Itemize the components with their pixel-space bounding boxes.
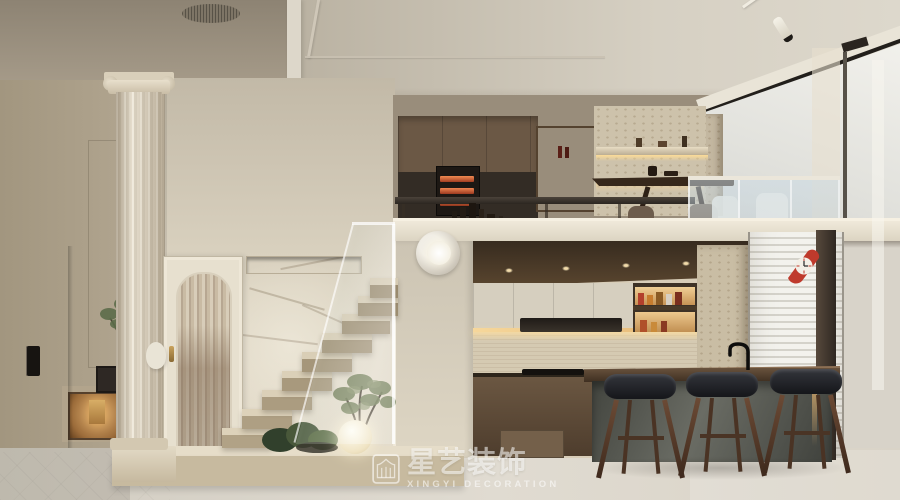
range-hood [520, 318, 622, 332]
spice-jar-icon [647, 295, 653, 305]
watermark-brand-en: XINGYI DECORATION [407, 479, 559, 490]
shelf-board [633, 306, 697, 310]
arched-door-glass [176, 272, 232, 448]
interior-photo: 星艺装饰 XINGYI DECORATION [0, 0, 900, 500]
dark-door-handle-icon [26, 346, 40, 376]
door-side-shadow [68, 246, 73, 448]
ceiling-pipe-horizontal [305, 56, 605, 58]
backsplash-glow [473, 332, 697, 341]
soffit-downlight-icon [562, 266, 570, 271]
red-triangle-clock [781, 245, 825, 287]
sheer-curtain-right [832, 44, 900, 472]
stair-step [242, 409, 292, 429]
loft-railing-rail [395, 197, 695, 204]
stool-seat [604, 374, 676, 399]
floating-stone-shelf [596, 147, 708, 155]
white-vase [146, 342, 166, 369]
soffit-downlight-icon [505, 268, 513, 273]
soffit-downlight-icon [622, 263, 630, 268]
glass-edge-top [352, 222, 395, 225]
stool-footrest [700, 434, 746, 438]
wine-bottle-icon [565, 147, 569, 158]
table-kettle-icon [648, 166, 657, 176]
bar-stool [686, 372, 776, 480]
shelf-object [682, 136, 687, 147]
spice-jar-icon [666, 294, 672, 305]
spice-jar-icon [638, 293, 644, 305]
spice-jar-icon [675, 292, 682, 305]
stool-footrest [784, 431, 830, 435]
watermark-brand-cn: 星艺装饰 [407, 448, 559, 478]
bar-faucet-icon [722, 340, 754, 370]
spice-jar-icon [656, 292, 663, 305]
gas-cooktop [522, 369, 584, 375]
curtain-light-gap [872, 60, 884, 390]
stool-footrest [618, 436, 664, 440]
niche-gold-plate [89, 400, 105, 424]
glass-edge-right [392, 224, 395, 444]
column-base [110, 438, 168, 450]
shelf-backlight [635, 287, 695, 305]
marble-lamp-light [427, 241, 451, 265]
shelf-underlight [596, 155, 708, 161]
watermark: 星艺装饰 XINGYI DECORATION [372, 448, 559, 490]
xingyi-pavilion-logo-icon [372, 454, 400, 484]
ceiling-vent-icon [182, 4, 240, 23]
door-handle-icon [169, 346, 174, 362]
wine-fridge-glow-shelf [440, 188, 474, 194]
soffit-downlight-icon [682, 261, 690, 266]
stool-seat [686, 372, 758, 397]
wine-fridge-glow-shelf [440, 176, 474, 182]
table-tea-set [664, 171, 678, 176]
fluted-column [116, 92, 162, 442]
shelf-object [658, 141, 667, 147]
column-pedestal [112, 446, 176, 482]
shelf-object [636, 138, 642, 147]
wine-bottle-icon [558, 146, 562, 158]
